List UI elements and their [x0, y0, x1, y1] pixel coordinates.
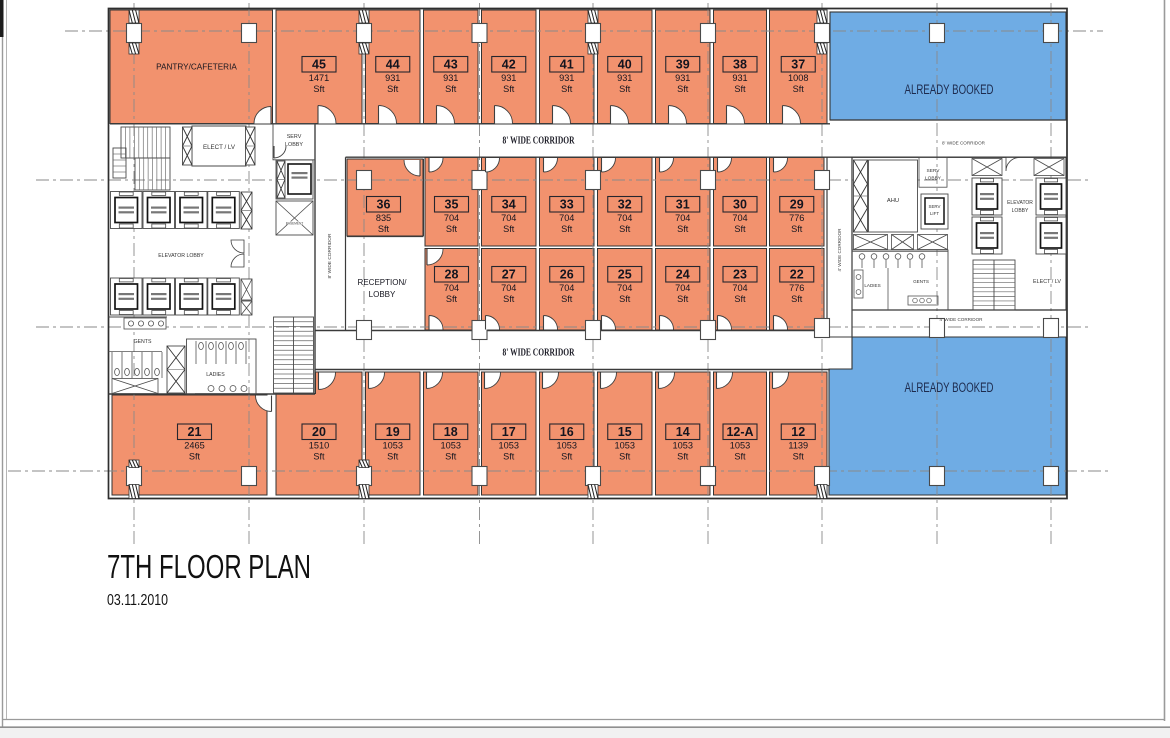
svg-text:Sft: Sft	[734, 452, 746, 462]
svg-text:8' WIDE CORRIDOR: 8' WIDE CORRIDOR	[503, 136, 576, 147]
svg-text:ELECT / LV: ELECT / LV	[203, 144, 236, 151]
svg-text:1471: 1471	[309, 73, 329, 83]
svg-text:Sft: Sft	[445, 452, 457, 462]
svg-text:704: 704	[501, 283, 516, 293]
svg-text:931: 931	[501, 73, 516, 83]
svg-text:ALREADY BOOKED: ALREADY BOOKED	[905, 82, 994, 97]
svg-text:39: 39	[676, 58, 690, 72]
svg-text:2465: 2465	[184, 441, 204, 451]
svg-text:1053: 1053	[730, 441, 750, 451]
svg-text:LOBBY: LOBBY	[369, 290, 396, 299]
svg-text:41: 41	[560, 58, 574, 72]
svg-text:Sft: Sft	[677, 452, 689, 462]
svg-text:PANTRY/CAFETERIA: PANTRY/CAFETERIA	[156, 63, 237, 72]
svg-text:776: 776	[789, 283, 804, 293]
svg-text:16: 16	[560, 425, 574, 439]
svg-text:14: 14	[676, 425, 690, 439]
svg-text:ALREADY BOOKED: ALREADY BOOKED	[905, 380, 994, 395]
svg-text:RECEPTION/: RECEPTION/	[358, 278, 408, 287]
svg-text:Sft: Sft	[446, 294, 458, 304]
svg-text:44: 44	[386, 58, 400, 72]
svg-text:32: 32	[618, 198, 632, 212]
svg-text:Sft: Sft	[387, 452, 399, 462]
svg-text:27: 27	[502, 268, 516, 282]
svg-text:17: 17	[502, 425, 516, 439]
svg-text:1053: 1053	[673, 441, 693, 451]
svg-text:931: 931	[559, 73, 574, 83]
svg-text:SERV: SERV	[287, 134, 302, 140]
svg-text:Sft: Sft	[734, 224, 746, 234]
svg-text:8' WIDE CORRIDOR: 8' WIDE CORRIDOR	[942, 141, 986, 146]
svg-text:704: 704	[675, 283, 690, 293]
svg-text:26: 26	[560, 268, 574, 282]
svg-text:Sft: Sft	[503, 224, 515, 234]
svg-text:Sft: Sft	[619, 224, 631, 234]
svg-text:LOBBY: LOBBY	[1012, 208, 1029, 214]
svg-text:38: 38	[733, 58, 747, 72]
svg-text:704: 704	[617, 213, 632, 223]
svg-text:Sft: Sft	[677, 224, 689, 234]
svg-text:931: 931	[617, 73, 632, 83]
svg-text:8' WIDE CORRIDOR: 8' WIDE CORRIDOR	[503, 348, 576, 359]
svg-text:704: 704	[501, 213, 516, 223]
svg-text:40: 40	[618, 58, 632, 72]
svg-text:ELEVATOR: ELEVATOR	[1007, 200, 1033, 206]
svg-text:8' WIDE CORRIDOR: 8' WIDE CORRIDOR	[327, 233, 333, 278]
svg-text:35: 35	[445, 198, 459, 212]
svg-text:SERV: SERV	[927, 168, 941, 174]
svg-text:12: 12	[791, 425, 805, 439]
svg-text:704: 704	[559, 283, 574, 293]
svg-text:03.11.2010: 03.11.2010	[107, 592, 168, 609]
svg-text:Sft: Sft	[793, 452, 805, 462]
svg-text:1053: 1053	[441, 441, 461, 451]
svg-text:25: 25	[618, 268, 632, 282]
svg-text:Sft: Sft	[734, 294, 746, 304]
svg-text:43: 43	[444, 58, 458, 72]
svg-text:36: 36	[377, 198, 391, 212]
svg-text:LOBBY: LOBBY	[285, 142, 303, 148]
svg-text:Sft: Sft	[793, 84, 805, 94]
svg-text:33: 33	[560, 198, 574, 212]
svg-text:1053: 1053	[557, 441, 577, 451]
svg-text:LIFT: LIFT	[930, 211, 939, 216]
svg-text:20: 20	[312, 425, 326, 439]
svg-text:Sft: Sft	[561, 294, 573, 304]
svg-text:1053: 1053	[383, 441, 403, 451]
svg-text:Sft: Sft	[189, 452, 201, 462]
svg-text:34: 34	[502, 198, 516, 212]
svg-text:Sft: Sft	[313, 84, 325, 94]
svg-text:931: 931	[675, 73, 690, 83]
svg-text:776: 776	[789, 213, 804, 223]
svg-text:AHU: AHU	[887, 198, 899, 204]
svg-text:Sft: Sft	[677, 294, 689, 304]
svg-text:31: 31	[676, 198, 690, 212]
svg-text:GENTS: GENTS	[134, 339, 152, 345]
svg-text:704: 704	[559, 213, 574, 223]
svg-text:22: 22	[790, 268, 804, 282]
svg-text:45: 45	[312, 58, 326, 72]
svg-text:4' WIDE CORRIDOR: 4' WIDE CORRIDOR	[940, 317, 984, 322]
svg-text:30: 30	[733, 198, 747, 212]
svg-text:ELECT / LV: ELECT / LV	[1033, 279, 1061, 285]
svg-text:24: 24	[676, 268, 690, 282]
svg-text:37: 37	[791, 58, 805, 72]
svg-text:LADIES: LADIES	[206, 372, 225, 378]
svg-text:12-A: 12-A	[726, 425, 753, 439]
svg-text:7TH FLOOR PLAN: 7TH FLOOR PLAN	[107, 548, 311, 585]
svg-text:1139: 1139	[788, 441, 808, 451]
svg-text:Sft: Sft	[734, 84, 746, 94]
svg-text:931: 931	[443, 73, 458, 83]
svg-text:704: 704	[617, 283, 632, 293]
svg-text:704: 704	[444, 283, 459, 293]
svg-text:BASEMENT: BASEMENT	[286, 222, 304, 226]
svg-text:4' WIDE CORRIDOR: 4' WIDE CORRIDOR	[837, 228, 842, 272]
svg-text:Sft: Sft	[561, 224, 573, 234]
svg-text:Sft: Sft	[791, 294, 803, 304]
svg-text:19: 19	[386, 425, 400, 439]
svg-text:Sft: Sft	[561, 84, 573, 94]
svg-text:Sft: Sft	[503, 84, 515, 94]
svg-text:Sft: Sft	[677, 84, 689, 94]
svg-text:704: 704	[444, 213, 459, 223]
svg-text:42: 42	[502, 58, 516, 72]
svg-text:1053: 1053	[615, 441, 635, 451]
svg-text:Sft: Sft	[619, 84, 631, 94]
svg-text:21: 21	[188, 425, 202, 439]
svg-text:931: 931	[385, 73, 400, 83]
svg-text:LADIES: LADIES	[864, 283, 880, 288]
svg-text:Sft: Sft	[791, 224, 803, 234]
svg-text:LOBBY: LOBBY	[925, 176, 942, 182]
svg-text:28: 28	[445, 268, 459, 282]
svg-text:29: 29	[790, 198, 804, 212]
svg-text:704: 704	[675, 213, 690, 223]
svg-text:835: 835	[376, 213, 391, 223]
svg-text:1008: 1008	[788, 73, 808, 83]
svg-text:Sft: Sft	[503, 452, 515, 462]
svg-text:GENTS: GENTS	[913, 279, 929, 284]
svg-text:704: 704	[732, 283, 747, 293]
svg-text:23: 23	[733, 268, 747, 282]
svg-text:1510: 1510	[309, 441, 329, 451]
svg-text:Sft: Sft	[313, 452, 325, 462]
svg-text:Sft: Sft	[387, 84, 399, 94]
svg-text:15: 15	[618, 425, 632, 439]
svg-text:704: 704	[732, 213, 747, 223]
svg-text:SERV: SERV	[929, 204, 941, 209]
svg-text:Sft: Sft	[378, 224, 390, 234]
svg-text:ELEVATOR LOBBY: ELEVATOR LOBBY	[158, 253, 204, 259]
svg-text:Sft: Sft	[561, 452, 573, 462]
svg-text:Sft: Sft	[446, 224, 458, 234]
svg-text:931: 931	[732, 73, 747, 83]
svg-text:Sft: Sft	[619, 294, 631, 304]
svg-text:18: 18	[444, 425, 458, 439]
svg-text:Sft: Sft	[619, 452, 631, 462]
svg-text:Sft: Sft	[503, 294, 515, 304]
svg-text:1053: 1053	[499, 441, 519, 451]
svg-text:Sft: Sft	[445, 84, 457, 94]
